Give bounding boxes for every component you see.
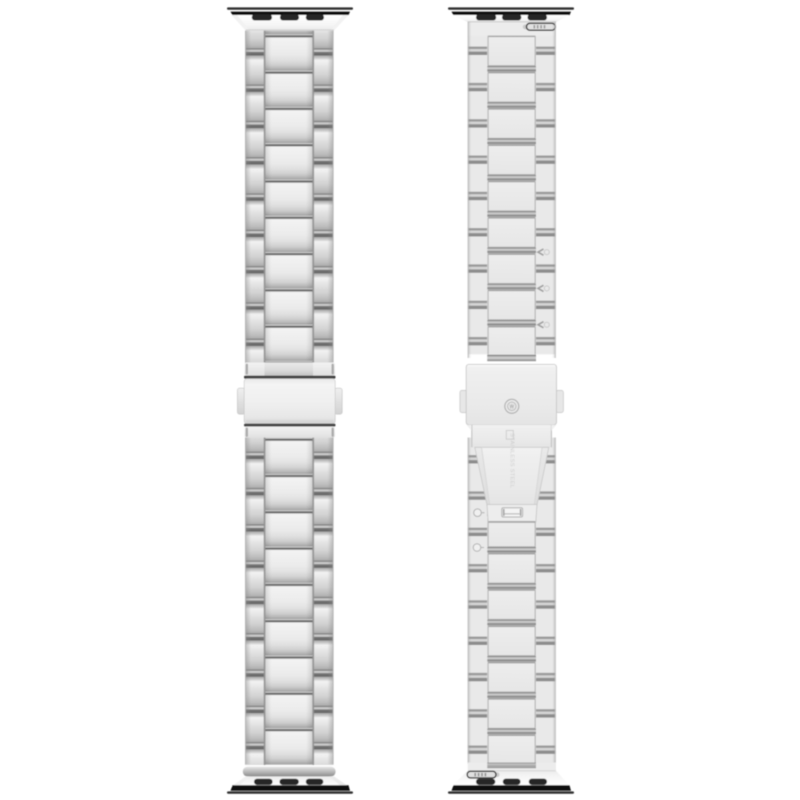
svg-text:STAINLESS STEEL: STAINLESS STEEL: [509, 433, 515, 489]
